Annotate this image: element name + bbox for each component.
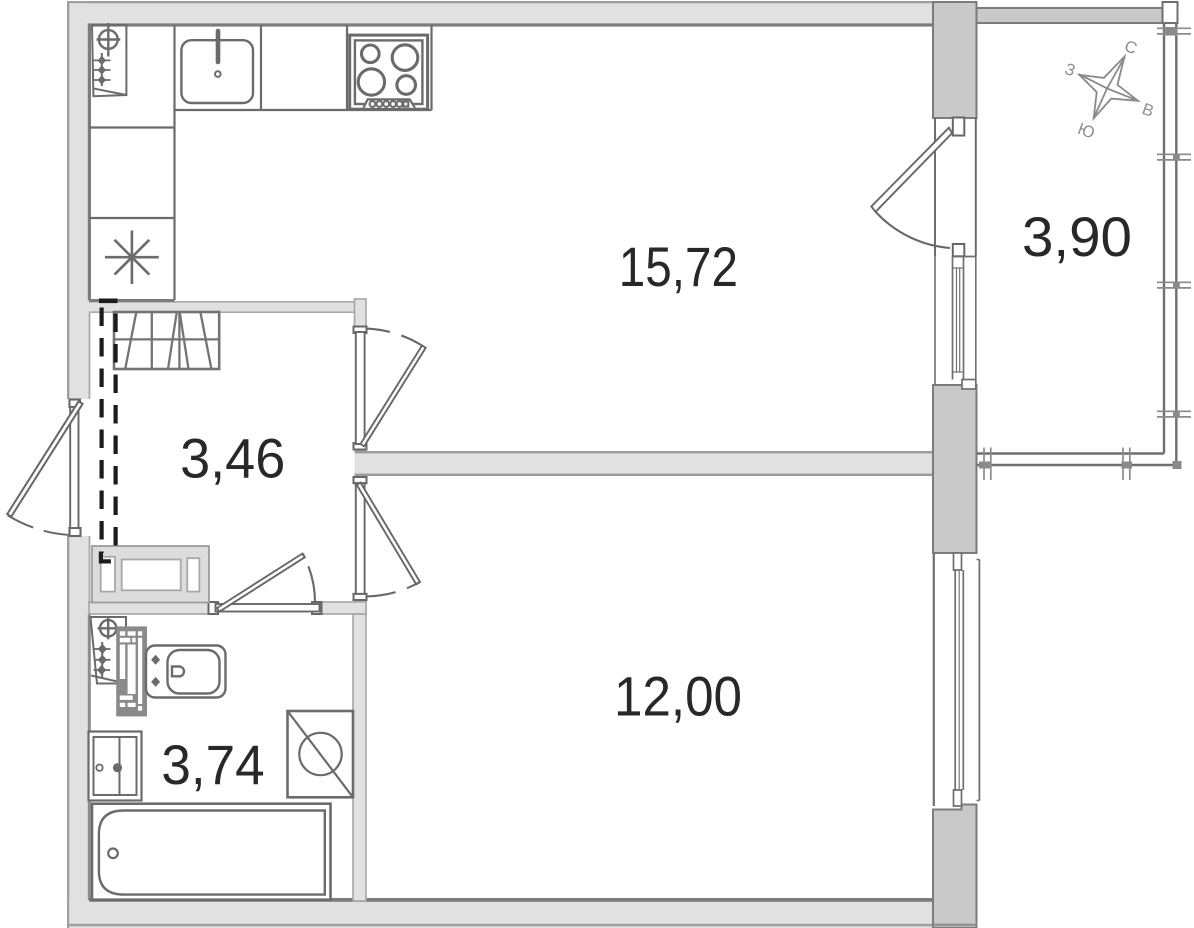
svg-text:3,46: 3,46 <box>180 426 285 489</box>
svg-text:12,00: 12,00 <box>614 665 742 728</box>
svg-text:15,72: 15,72 <box>619 235 738 298</box>
svg-text:3,74: 3,74 <box>161 733 264 796</box>
svg-text:3,90: 3,90 <box>1022 205 1132 268</box>
